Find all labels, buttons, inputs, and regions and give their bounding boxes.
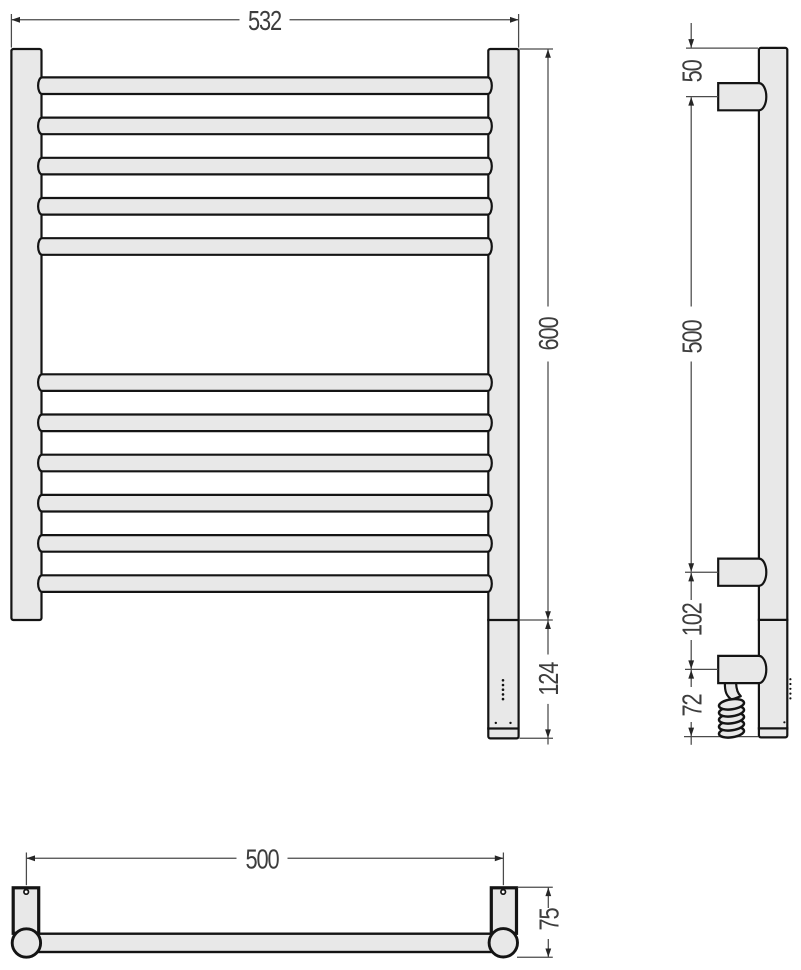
svg-text:50: 50 — [677, 60, 708, 82]
svg-text:600: 600 — [534, 317, 565, 350]
svg-text:75: 75 — [534, 908, 565, 930]
svg-text:500: 500 — [246, 844, 279, 875]
svg-text:500: 500 — [677, 320, 708, 353]
svg-text:124: 124 — [534, 662, 565, 696]
svg-text:532: 532 — [248, 6, 281, 37]
svg-text:72: 72 — [677, 694, 708, 716]
svg-text:102: 102 — [677, 603, 708, 636]
